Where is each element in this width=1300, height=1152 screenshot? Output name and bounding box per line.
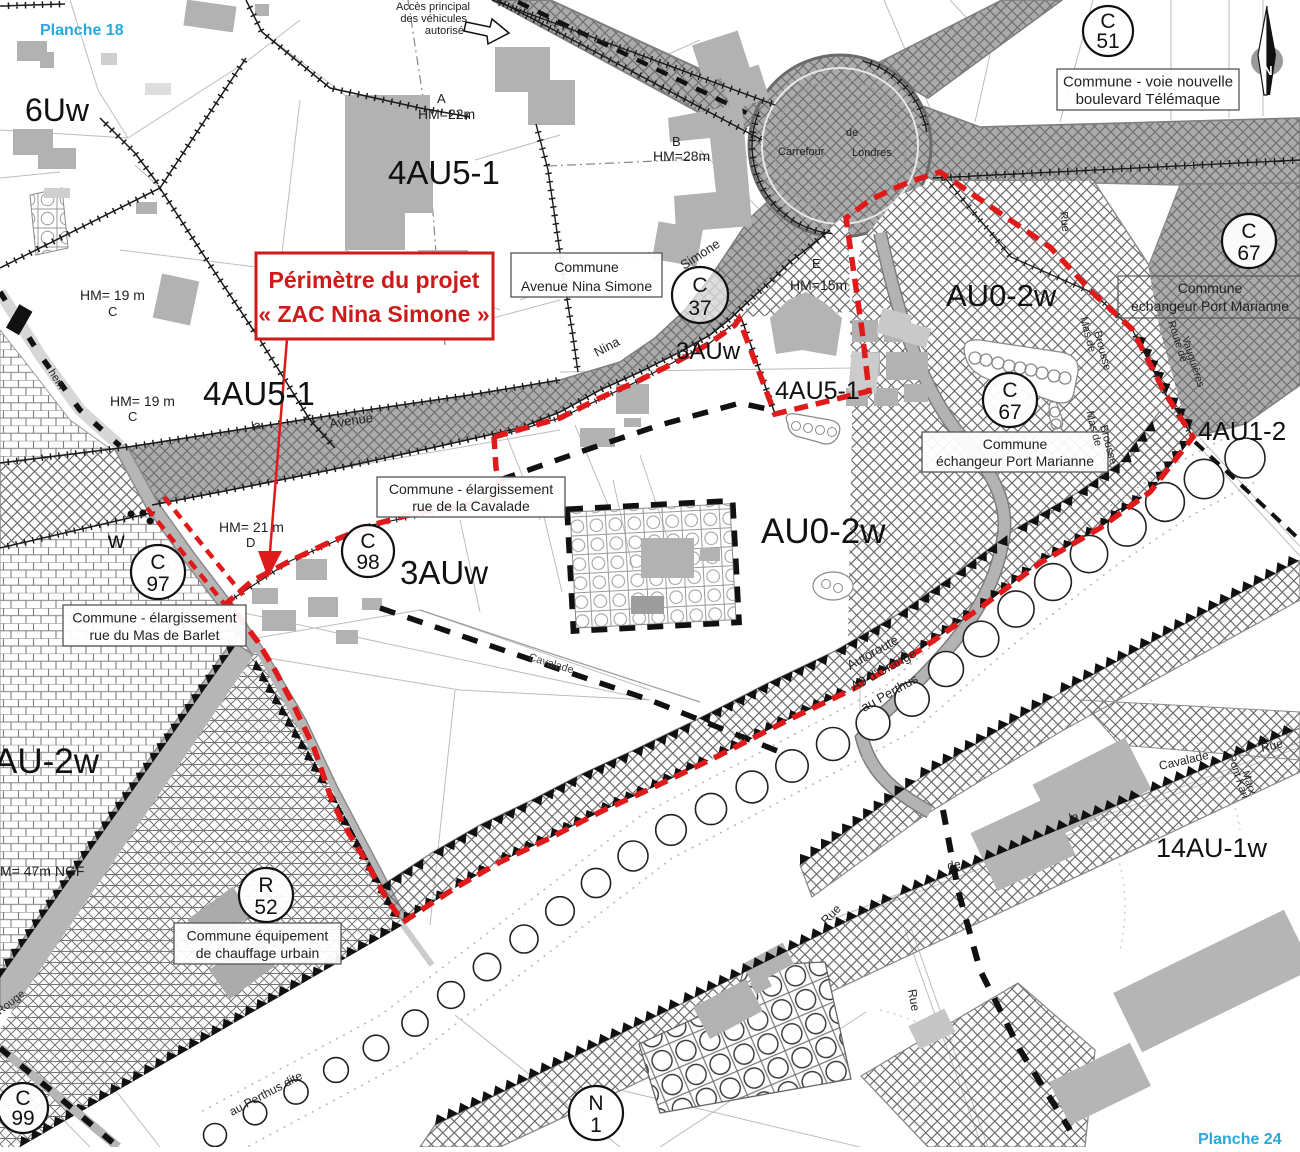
svg-text:Carrefour: Carrefour <box>778 146 825 158</box>
svg-text:C: C <box>360 530 375 553</box>
svg-text:Commune: Commune <box>983 436 1048 452</box>
svg-text:14AU-1w: 14AU-1w <box>1156 833 1268 863</box>
svg-text:Rue: Rue <box>1057 211 1071 232</box>
svg-text:de: de <box>846 127 858 139</box>
svg-text:rue du Mas de Barlet: rue du Mas de Barlet <box>90 627 220 643</box>
svg-text:C: C <box>1241 220 1256 243</box>
svg-text:4AU5-1: 4AU5-1 <box>203 375 315 412</box>
svg-text:E: E <box>812 256 821 271</box>
svg-text:B: B <box>672 134 681 149</box>
svg-text:de chauffage urbain: de chauffage urbain <box>196 945 320 961</box>
svg-text:de: de <box>946 857 962 873</box>
svg-text:98: 98 <box>356 551 379 574</box>
svg-text:Londres: Londres <box>852 147 892 159</box>
svg-text:3AUw: 3AUw <box>676 338 741 365</box>
svg-text:67: 67 <box>1237 242 1260 265</box>
svg-text:Accès principal: Accès principal <box>396 1 470 13</box>
svg-text:Commune - élargissement: Commune - élargissement <box>72 610 236 626</box>
svg-text:R: R <box>258 874 273 897</box>
svg-text:A: A <box>437 91 446 106</box>
svg-text:HM=15m: HM=15m <box>790 277 847 293</box>
svg-text:Commune - élargissement: Commune - élargissement <box>389 481 553 497</box>
svg-text:67: 67 <box>998 401 1021 424</box>
svg-text:autorisé: autorisé <box>425 25 464 37</box>
svg-text:w: w <box>107 527 125 553</box>
svg-text:4AU1-2: 4AU1-2 <box>1198 416 1286 446</box>
svg-text:99: 99 <box>11 1107 34 1130</box>
svg-text:N: N <box>588 1092 603 1115</box>
svg-text:52: 52 <box>254 896 277 919</box>
svg-text:Commune: Commune <box>554 259 619 275</box>
svg-text:Commune: Commune <box>1178 280 1243 296</box>
svg-text:rue de la Cavalade: rue de la Cavalade <box>412 498 530 514</box>
svg-text:3AUw: 3AUw <box>400 554 488 591</box>
svg-text:6Uw: 6Uw <box>25 92 90 128</box>
svg-text:1: 1 <box>590 1114 602 1137</box>
svg-text:51: 51 <box>1096 30 1119 53</box>
svg-text:C: C <box>150 551 165 574</box>
svg-text:Planche 18: Planche 18 <box>40 22 124 39</box>
svg-text:Commune équipement: Commune équipement <box>187 928 329 944</box>
svg-text:N: N <box>1263 64 1272 78</box>
svg-text:D: D <box>246 535 255 550</box>
svg-text:HM=28m: HM=28m <box>653 148 710 164</box>
svg-text:4AU5-1: 4AU5-1 <box>775 377 860 405</box>
svg-text:37: 37 <box>688 297 711 320</box>
svg-text:Commune - voie nouvelle: Commune - voie nouvelle <box>1063 74 1233 91</box>
svg-text:des véhicules: des véhicules <box>400 13 467 25</box>
svg-text:HM= 21 m: HM= 21 m <box>219 519 284 535</box>
svg-text:AU0-2w: AU0-2w <box>946 278 1057 313</box>
svg-text:C: C <box>692 274 707 297</box>
svg-text:M= 47m NGF: M= 47m NGF <box>0 863 84 879</box>
svg-text:« ZAC Nina Simone »: « ZAC Nina Simone » <box>258 301 489 327</box>
svg-text:AU0-2w: AU0-2w <box>761 512 886 551</box>
svg-text:AU-2w: AU-2w <box>0 742 100 781</box>
svg-text:boulevard Télémaque: boulevard Télémaque <box>1076 91 1221 108</box>
svg-text:Périmètre du projet: Périmètre du projet <box>269 267 480 293</box>
svg-text:échangeur Port Marianne: échangeur Port Marianne <box>936 453 1094 469</box>
svg-text:Planche 24: Planche 24 <box>1198 1131 1282 1147</box>
svg-text:Avenue Nina Simone: Avenue Nina Simone <box>521 278 652 294</box>
svg-text:C: C <box>128 409 137 424</box>
svg-text:C: C <box>1002 379 1017 402</box>
svg-text:4AU5-1: 4AU5-1 <box>388 154 500 191</box>
svg-text:HM= 19 m: HM= 19 m <box>110 393 175 409</box>
svg-text:HM= 19 m: HM= 19 m <box>80 287 145 303</box>
svg-text:échangeur Port Marianne: échangeur Port Marianne <box>1131 298 1289 314</box>
svg-text:C: C <box>108 304 117 319</box>
svg-text:97: 97 <box>146 573 169 596</box>
svg-text:HM=22m: HM=22m <box>418 106 475 122</box>
